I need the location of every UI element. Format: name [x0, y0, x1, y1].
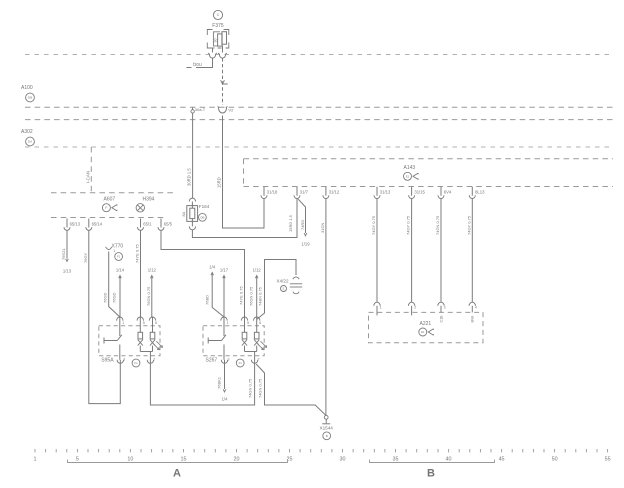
svg-text:f30U: f30U — [193, 62, 202, 67]
svg-text:1: 1 — [34, 457, 37, 463]
svg-text:30RD 1.5: 30RD 1.5 — [187, 168, 192, 186]
svg-text:74YE 0.75: 74YE 0.75 — [135, 244, 140, 263]
svg-text:F375: F375 — [212, 23, 224, 29]
svg-text:31/12: 31/12 — [329, 190, 340, 195]
svg-text:E1: E1 — [421, 330, 425, 334]
svg-text:4: 4 — [475, 306, 477, 310]
svg-text:C1B: C1B — [439, 315, 443, 323]
svg-text:74GN 0.75: 74GN 0.75 — [248, 378, 253, 398]
svg-text:65/13: 65/13 — [70, 222, 81, 227]
svg-text:76GN 0.75: 76GN 0.75 — [146, 286, 151, 306]
svg-text:DB: DB — [28, 96, 32, 100]
svg-text:65/5: 65/5 — [164, 222, 173, 227]
svg-text:35: 35 — [393, 457, 399, 463]
svg-text:E1: E1 — [406, 174, 410, 178]
svg-text:X4/22: X4/22 — [277, 279, 289, 284]
svg-text:15RD 1.5: 15RD 1.5 — [288, 214, 293, 232]
svg-text:76BK1: 76BK1 — [217, 376, 222, 389]
svg-text:A: A — [173, 468, 181, 480]
svg-text:S95A: S95A — [101, 358, 114, 364]
svg-text:F1: F1 — [239, 361, 243, 365]
svg-text:DA: DA — [28, 140, 32, 144]
svg-text:1/12: 1/12 — [148, 268, 157, 273]
svg-text:65/1: 65/1 — [143, 222, 152, 227]
svg-text:76BD: 76BD — [205, 295, 210, 305]
svg-text:A143: A143 — [404, 165, 416, 171]
svg-text:I-CAN: I-CAN — [86, 171, 91, 183]
svg-text:5: 5 — [247, 321, 249, 325]
svg-text:76GN 0.75: 76GN 0.75 — [248, 286, 253, 306]
svg-text:76GY: 76GY — [83, 252, 88, 263]
svg-text:31GN: 31GN — [320, 222, 325, 233]
svg-text:31/13: 31/13 — [380, 190, 391, 195]
svg-text:8L13: 8L13 — [475, 190, 485, 195]
svg-text:1/4: 1/4 — [222, 397, 228, 402]
svg-text:1/4: 1/4 — [209, 265, 215, 270]
svg-text:74YE 0.75: 74YE 0.75 — [238, 286, 243, 305]
svg-text:F1: F1 — [134, 361, 138, 365]
svg-text:2: 2 — [414, 306, 416, 310]
svg-text:55: 55 — [605, 457, 611, 463]
svg-text:E: E — [283, 286, 285, 290]
svg-text:F: F — [105, 206, 107, 210]
svg-text:50: 50 — [552, 457, 558, 463]
svg-text:B: B — [427, 468, 435, 480]
svg-text:1/19: 1/19 — [301, 242, 310, 247]
svg-text:31/18: 31/18 — [267, 190, 278, 195]
svg-text:F1: F1 — [117, 255, 121, 259]
svg-text:1: 1 — [113, 249, 115, 253]
svg-text:1/14: 1/14 — [116, 268, 125, 273]
svg-text:76GD: 76GD — [111, 292, 116, 303]
svg-text:7: 7 — [258, 357, 260, 361]
svg-text:1: 1 — [227, 321, 229, 325]
svg-text:6V4: 6V4 — [444, 190, 452, 195]
svg-text:X1544: X1544 — [320, 426, 334, 431]
svg-text:30: 30 — [214, 39, 218, 43]
svg-text:15RD: 15RD — [216, 177, 221, 188]
svg-text:20: 20 — [233, 457, 239, 463]
svg-text:6: 6 — [155, 321, 157, 325]
svg-text:5: 5 — [76, 457, 79, 463]
svg-text:8A: 8A — [182, 211, 186, 216]
svg-text:S267: S267 — [206, 358, 218, 364]
svg-text:A302: A302 — [21, 129, 33, 135]
svg-text:74GN 0.75: 74GN 0.75 — [435, 215, 440, 235]
svg-text:H394: H394 — [143, 197, 155, 203]
svg-text:5: 5 — [143, 321, 145, 325]
svg-text:31/7: 31/7 — [300, 190, 309, 195]
svg-text:1: 1 — [122, 321, 124, 325]
svg-text:74GY 0.75: 74GY 0.75 — [466, 215, 471, 235]
svg-text:76S21: 76S21 — [61, 248, 66, 260]
svg-text:3: 3 — [123, 357, 125, 361]
svg-text:74BN 0.75: 74BN 0.75 — [257, 286, 262, 306]
svg-text:6: 6 — [259, 321, 261, 325]
svg-text:3: 3 — [444, 306, 446, 310]
svg-text:7: 7 — [153, 357, 155, 361]
svg-text:76GD: 76GD — [103, 292, 108, 303]
svg-text:40: 40 — [446, 457, 452, 463]
svg-text:8N8: 8N8 — [471, 316, 475, 323]
svg-text:V2: V2 — [229, 108, 235, 113]
svg-text:10: 10 — [127, 457, 133, 463]
svg-text:DB: DB — [200, 215, 204, 219]
svg-text:30a-T: 30a-T — [195, 107, 206, 112]
svg-text:A100: A100 — [21, 85, 33, 91]
svg-text:1/13: 1/13 — [63, 269, 72, 274]
svg-text:30: 30 — [340, 457, 346, 463]
svg-text:74GY 0.75: 74GY 0.75 — [406, 215, 411, 235]
svg-text:31/15: 31/15 — [414, 190, 425, 195]
svg-text:3: 3 — [228, 357, 230, 361]
svg-text:1/17: 1/17 — [220, 268, 229, 273]
svg-text:15: 15 — [180, 457, 186, 463]
svg-text:A607: A607 — [104, 197, 116, 203]
svg-text:74RD: 74RD — [300, 220, 305, 230]
svg-text:1: 1 — [380, 306, 382, 310]
svg-text:65/14: 65/14 — [92, 222, 103, 227]
svg-text:B: B — [326, 434, 328, 438]
svg-text:F164: F164 — [199, 204, 210, 209]
svg-text:A221: A221 — [420, 321, 432, 327]
svg-text:1/12: 1/12 — [253, 268, 262, 273]
svg-text:74GY 0.75: 74GY 0.75 — [371, 215, 376, 235]
svg-text:45: 45 — [499, 457, 505, 463]
svg-text:74GN 0.75: 74GN 0.75 — [258, 378, 263, 398]
